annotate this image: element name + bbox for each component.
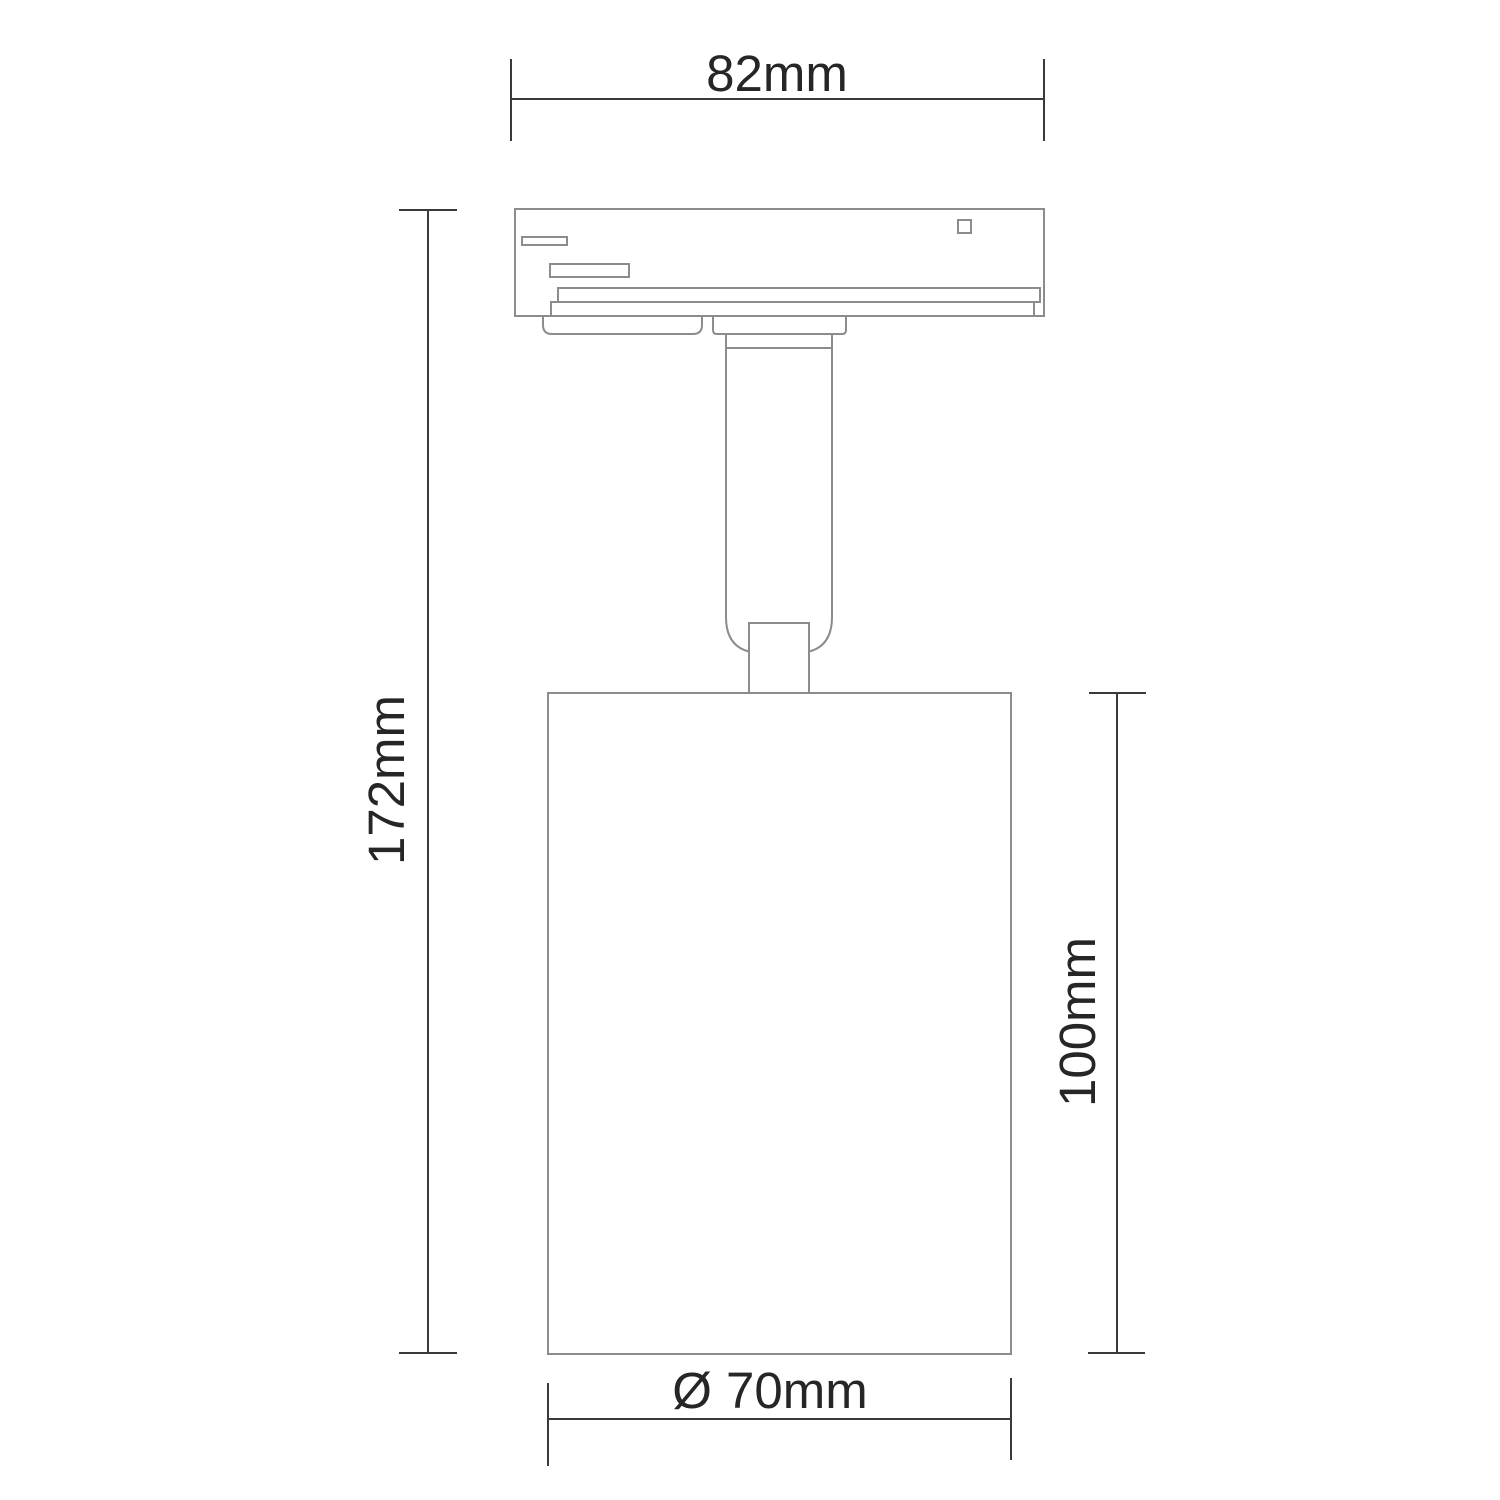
lamp-body: [548, 693, 1011, 1354]
overall-height-dimension-label: 172mm: [358, 695, 415, 865]
adapter-slot-small: [522, 237, 567, 245]
track-adapter-body: [515, 209, 1044, 316]
dimension-drawing-page: 82mm 172mm 100mm Ø 70mm: [0, 0, 1500, 1500]
adapter-rail-upper: [558, 288, 1040, 302]
stem-collar: [713, 316, 846, 334]
fixture-outline-group: [515, 209, 1044, 1354]
body-diameter-dimension-label: Ø 70mm: [672, 1362, 868, 1419]
adapter-foot-left: [543, 316, 702, 334]
body-height-dimension-label: 100mm: [1049, 937, 1106, 1107]
adapter-width-dimension-label: 82mm: [706, 45, 848, 102]
fixture-dimension-diagram: 82mm 172mm 100mm Ø 70mm: [0, 0, 1500, 1500]
stem: [726, 334, 832, 653]
adapter-rail-lower: [551, 302, 1034, 316]
adapter-slot-large: [550, 264, 629, 277]
adapter-screw-window: [958, 220, 971, 233]
dimension-lines-group: [399, 59, 1146, 1466]
pivot-block: [749, 623, 809, 693]
dimension-labels-group: 82mm 172mm 100mm Ø 70mm: [358, 45, 1106, 1419]
